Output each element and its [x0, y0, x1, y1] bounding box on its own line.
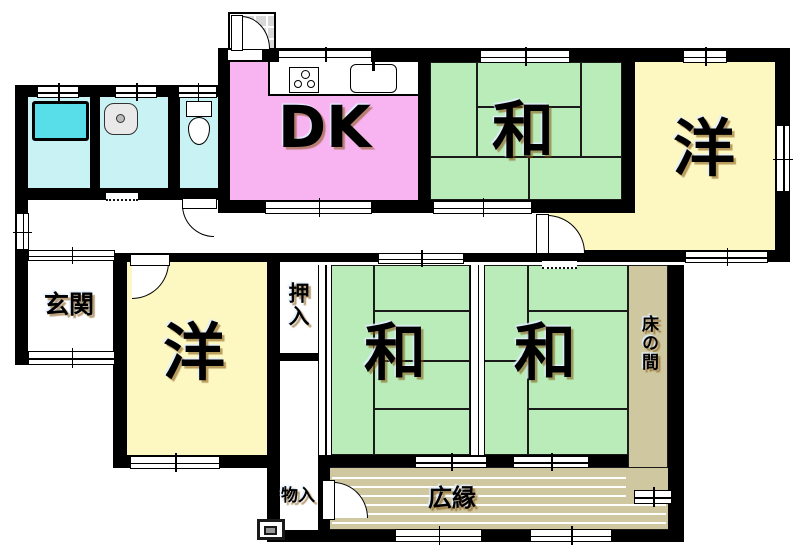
- entry-step-icon: [264, 526, 277, 535]
- stove-burner-icon: [301, 70, 310, 79]
- room-label-yo-top: 洋: [673, 118, 735, 180]
- tatami-line: [527, 408, 627, 410]
- veranda-plank-line: [332, 486, 626, 488]
- room-label-wa-lower-right: 和: [514, 322, 576, 384]
- tatami-line: [580, 62, 582, 157]
- tatami-line: [373, 408, 470, 410]
- window: [480, 50, 570, 63]
- window: [37, 86, 79, 98]
- sliding-door: [433, 201, 532, 214]
- room-label-oshiire: 押入: [287, 282, 308, 328]
- genkan-step-line: [28, 250, 115, 261]
- yo-lower-door-leaf: [130, 254, 170, 266]
- veranda-door-leaf: [322, 480, 335, 520]
- sliding-door: [513, 456, 589, 468]
- veranda-plank-line: [332, 504, 666, 506]
- toilet-door-swing: [182, 205, 214, 237]
- toilet-door-leaf: [182, 198, 217, 209]
- oshiire-fusuma: [318, 265, 332, 455]
- wall: [218, 48, 230, 213]
- window: [685, 251, 768, 263]
- washroom-sliding-door: [106, 193, 138, 201]
- veranda-plank-line: [332, 522, 666, 524]
- wall: [90, 97, 100, 192]
- wall: [168, 97, 180, 192]
- tokonoma-alcove: [628, 265, 668, 490]
- wall: [622, 62, 635, 213]
- room-label-monoire: 物入: [281, 488, 315, 505]
- wall: [267, 253, 280, 468]
- wall: [280, 353, 318, 361]
- room-label-genkan: 玄関: [44, 292, 94, 317]
- window: [115, 86, 157, 98]
- window: [178, 86, 217, 98]
- veranda-plank-line: [332, 495, 626, 497]
- faucet-icon: [372, 57, 375, 71]
- wall: [113, 253, 127, 468]
- floor-plan: DK 和 洋 洋 和 和 玄関 押入 物入 床の間 広縁: [0, 0, 800, 557]
- entrance-door: [28, 351, 115, 365]
- room-label-dk: DK: [278, 98, 371, 156]
- veranda-plank-line: [332, 513, 666, 515]
- window: [130, 456, 220, 469]
- window: [683, 50, 727, 63]
- porch-door-leaf: [231, 15, 243, 51]
- tatami-line: [476, 62, 478, 157]
- window: [776, 125, 790, 192]
- tatami-line: [373, 310, 470, 312]
- porch-door-opening: [228, 50, 262, 60]
- toilet-tank-icon: [186, 101, 212, 117]
- room-label-hiroen: 広縁: [428, 486, 476, 510]
- window: [395, 529, 482, 542]
- wall: [280, 530, 684, 542]
- stove-burner-icon: [307, 80, 315, 88]
- room-label-yo-lower: 洋: [163, 322, 225, 384]
- tatami-line: [527, 310, 627, 312]
- veranda-plank-line: [332, 477, 626, 479]
- room-label-wa-top: 和: [492, 100, 554, 162]
- window: [16, 213, 29, 250]
- stove-burner-icon: [294, 80, 302, 88]
- window: [634, 490, 672, 504]
- sliding-door-hatch: [542, 261, 577, 269]
- wall: [418, 62, 430, 213]
- yo-top-door-leaf: [536, 214, 549, 254]
- washbasin-drain-icon: [116, 114, 125, 123]
- sliding-door: [378, 253, 464, 264]
- fusuma-partition: [470, 265, 485, 455]
- room-label-wa-lower-left: 和: [364, 322, 426, 384]
- window: [530, 529, 612, 542]
- sliding-door: [415, 456, 487, 468]
- bathtub-icon: [32, 101, 89, 141]
- sliding-door: [265, 201, 372, 214]
- room-label-tokonoma: 床の間: [639, 315, 656, 372]
